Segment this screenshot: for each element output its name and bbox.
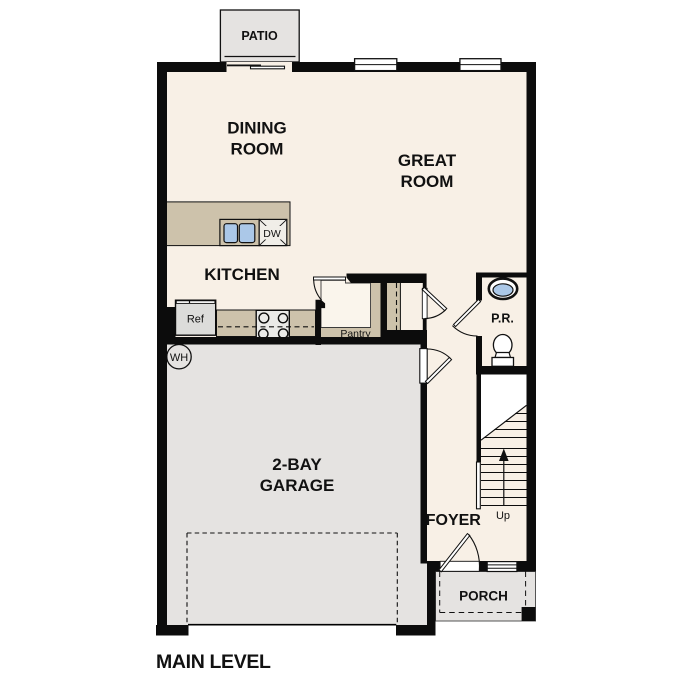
svg-text:PORCH: PORCH (459, 589, 508, 604)
svg-text:Up: Up (496, 510, 510, 522)
svg-text:Ref: Ref (187, 314, 205, 326)
svg-text:PATIO: PATIO (241, 29, 278, 43)
svg-text:GREAT: GREAT (398, 151, 457, 170)
svg-text:MAIN LEVEL: MAIN LEVEL (156, 651, 271, 673)
svg-text:KITCHEN: KITCHEN (204, 265, 280, 284)
svg-text:FOYER: FOYER (426, 512, 482, 529)
svg-text:ROOM: ROOM (231, 140, 284, 159)
svg-text:P.R.: P.R. (491, 312, 514, 326)
svg-text:ROOM: ROOM (401, 172, 454, 191)
svg-text:2-BAY: 2-BAY (272, 455, 322, 474)
svg-text:GARAGE: GARAGE (260, 476, 335, 495)
svg-text:WH: WH (170, 352, 188, 364)
svg-text:DINING: DINING (227, 119, 287, 138)
svg-text:DW: DW (263, 228, 281, 240)
